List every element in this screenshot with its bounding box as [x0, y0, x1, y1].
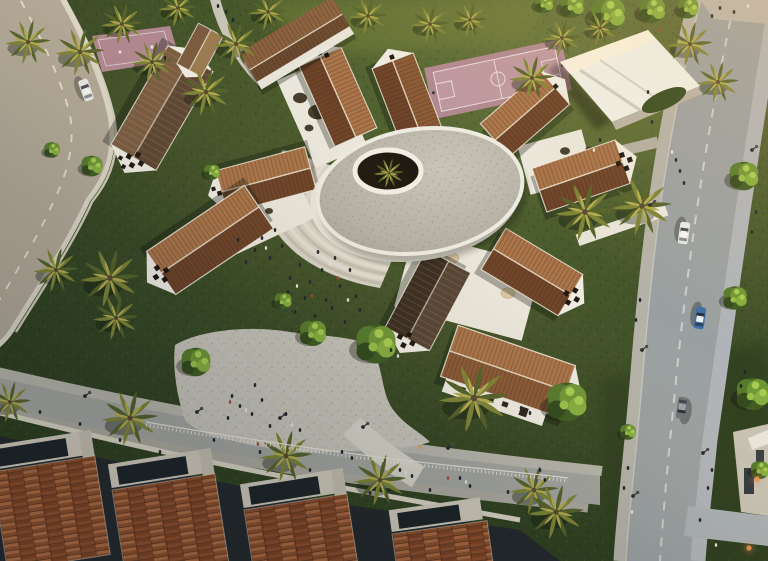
sunset-light-overlay	[0, 0, 768, 561]
scene-canvas	[0, 0, 768, 561]
aerial-render-stage: Aerial dusk rendering of a circular scho…	[0, 0, 768, 561]
